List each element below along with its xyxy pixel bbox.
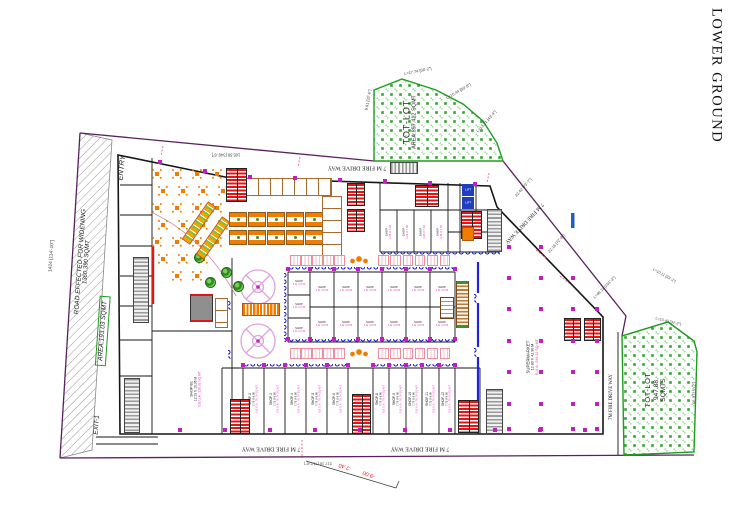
- column-marker: [448, 428, 451, 431]
- area-box-text: AREA:193.03 SQMT: [97, 301, 109, 361]
- courtyard-bench: [242, 303, 280, 316]
- shop-label: SHOP4.11 X 8.53: [293, 303, 305, 309]
- dining-table: [152, 237, 162, 247]
- stair-core: [347, 183, 365, 206]
- column-marker: [262, 363, 265, 366]
- booth-seating: [229, 212, 247, 227]
- dining-table: [198, 186, 208, 196]
- column-marker: [420, 363, 423, 366]
- column-marker: [308, 337, 311, 340]
- escalator: [133, 257, 149, 323]
- dining-table: [158, 220, 168, 230]
- column-marker: [325, 363, 328, 366]
- dining-table: [172, 203, 182, 213]
- column-marker: [223, 428, 226, 431]
- booth-seating: [229, 230, 247, 245]
- shop-label: SHOP4.11 X 8.53: [293, 280, 305, 286]
- shop-label: SHOP-57.75 X 9.90S.B.U.A : 76.74 SQ MT: [311, 380, 321, 419]
- planter: [403, 348, 414, 359]
- column-marker: [595, 307, 598, 310]
- column-marker: [371, 363, 374, 366]
- awning-scallop: [380, 252, 500, 257]
- stair-core: [584, 318, 601, 341]
- stall-counter: [215, 298, 228, 328]
- planter: [415, 348, 426, 359]
- column-marker: [507, 427, 510, 430]
- escalator: [456, 281, 469, 328]
- column-marker: [539, 245, 542, 248]
- kitchen-block: [190, 294, 213, 322]
- shop-label: SHOP4.26 X 7.92: [402, 218, 409, 246]
- column-marker: [332, 267, 335, 270]
- dining-table: [152, 203, 162, 213]
- column-marker: [539, 307, 542, 310]
- shop-label: SHOP4.26 X 7.92: [436, 218, 443, 246]
- shop-label: SHOP4.11 X 8.53: [412, 321, 424, 327]
- column-marker: [387, 363, 390, 366]
- awning-scallop: [373, 364, 455, 369]
- column-marker: [286, 267, 289, 270]
- column-marker: [268, 428, 271, 431]
- column-marker: [380, 337, 383, 340]
- column-marker: [571, 339, 574, 342]
- booth-seating: [305, 230, 323, 245]
- column-marker: [473, 182, 476, 185]
- booth-seating: [267, 230, 285, 245]
- shop-label: SHOP-87.75 X 9.90S.B.U.A : 76.74 SQ MT: [376, 380, 386, 419]
- supermarket-label: SUPERMARKET 12.80 X 42.90 M B.U.A : 549.…: [526, 339, 539, 375]
- shop-label: SHOP4.11 X 8.53: [364, 286, 376, 292]
- shop-label: SHOP4.11 X 8.53: [340, 321, 352, 327]
- dining-table: [158, 254, 168, 264]
- lift: LIFT: [462, 184, 474, 196]
- exit-label: EXIT-1: [93, 415, 102, 435]
- planter: [440, 348, 451, 359]
- column-marker: [539, 276, 542, 279]
- column-marker: [356, 267, 359, 270]
- entrance-steps: [390, 162, 418, 174]
- column-marker: [571, 427, 574, 430]
- dining-table: [158, 186, 168, 196]
- escalator: [486, 389, 503, 434]
- column-marker: [428, 337, 431, 340]
- column-marker: [571, 402, 574, 405]
- column-marker: [404, 337, 407, 340]
- shop-label: SHOP4.11 X 8.53: [293, 327, 305, 333]
- column-marker: [383, 179, 386, 182]
- column-marker: [158, 160, 161, 163]
- column-marker: [178, 428, 181, 431]
- dining-table: [152, 169, 162, 179]
- column-marker: [358, 428, 361, 431]
- column-marker: [283, 363, 286, 366]
- column-marker: [493, 428, 496, 431]
- column-marker: [507, 339, 510, 342]
- column-marker: [313, 428, 316, 431]
- column-marker: [595, 339, 598, 342]
- dining-table: [192, 169, 202, 179]
- service-box: [462, 227, 474, 241]
- floor-plan-sheet: LOWER GROUND ENTRY EXIT-1 ROAD EFFECTED …: [0, 0, 746, 522]
- column-marker: [241, 363, 244, 366]
- shop-label: SHOP4.26 X 7.92: [419, 218, 426, 246]
- column-marker: [507, 307, 510, 310]
- stair-core: [226, 168, 247, 202]
- booth-seating: [248, 230, 266, 245]
- planter: [290, 348, 301, 359]
- stall-counter: [246, 178, 332, 196]
- column-marker: [453, 337, 456, 340]
- dining-table: [172, 169, 182, 179]
- column-marker: [507, 245, 510, 248]
- column-marker: [539, 370, 542, 373]
- dim-top: 105.58 [346'-5"]: [212, 152, 241, 157]
- section-mark: [571, 213, 575, 228]
- dim-bottom: 217.16 [712'-6"]: [304, 461, 332, 466]
- tot-lot-top-area: [374, 79, 503, 161]
- planter: [312, 348, 323, 359]
- door-zigzag: [228, 349, 233, 359]
- column-marker: [583, 428, 586, 431]
- planter-ornament: [349, 347, 369, 360]
- dining-table: [172, 271, 182, 281]
- hall-label: SHOP-B1 12.19 X 10.36 M S.B.U.A : 126.33…: [190, 371, 202, 407]
- column-marker: [437, 363, 440, 366]
- shop-label: SHOP4.26 X 7.92: [385, 218, 392, 246]
- hall-area: S.B.U.A : 126.33 SQ MT: [198, 371, 202, 407]
- column-marker: [404, 363, 407, 366]
- booth-seating: [286, 212, 304, 227]
- planter: [334, 255, 345, 266]
- column-marker: [595, 402, 598, 405]
- shop-label: SHOP-127.75 X 9.90S.B.U.A : 76.74 SQ MT: [442, 380, 452, 419]
- stair-core: [347, 209, 365, 232]
- shop-label: SHOP-37.75 X 9.90S.B.U.A : 76.74 SQ MT: [269, 380, 279, 419]
- sheet-title: LOWER GROUND: [708, 8, 725, 143]
- shop-label: SHOP4.11 X 8.53: [436, 286, 448, 292]
- column-marker: [308, 267, 311, 270]
- store-box: [440, 297, 454, 319]
- tree: [233, 281, 244, 292]
- booth-seating: [286, 230, 304, 245]
- column-marker: [571, 370, 574, 373]
- fire-drive-way-right: 7M FIRE DRIVE WAY: [609, 374, 615, 420]
- lift: LIFT: [462, 197, 474, 209]
- tot-lot-top-label: TOT-LOT AREA:897.412 SQMT: [402, 95, 419, 149]
- column-marker: [286, 337, 289, 340]
- stall-counter: [322, 196, 342, 256]
- stair-core: [230, 399, 250, 434]
- shop-label: SHOP-117.75 X 9.90S.B.U.A : 76.74 SQ MT: [425, 380, 435, 419]
- awning-scallop: [243, 364, 348, 369]
- fire-drive-way-top: 7 M FIRE DRIVE WAY: [328, 164, 387, 171]
- stair-core: [415, 185, 439, 207]
- column-marker: [571, 307, 574, 310]
- stair-core: [564, 318, 581, 341]
- planter: [323, 255, 334, 266]
- column-marker: [428, 181, 431, 184]
- planter-ornament: [349, 254, 369, 267]
- shop-label: SHOP4.11 X 8.53: [436, 321, 448, 327]
- shop-label: SHOP4.11 X 8.53: [316, 321, 328, 327]
- column-marker: [539, 339, 542, 342]
- shop-label: SHOP4.11 X 8.53: [412, 286, 424, 292]
- column-marker: [346, 363, 349, 366]
- tot-lot-top-name: TOT-LOT: [402, 95, 412, 149]
- planter: [334, 348, 345, 359]
- stair-core: [458, 400, 479, 433]
- column-marker: [571, 276, 574, 279]
- planter: [301, 348, 312, 359]
- tot-lot-top-area: AREA:897.412 SQMT: [412, 95, 418, 149]
- column-marker: [507, 370, 510, 373]
- shop-label: SHOP4.11 X 8.53: [340, 286, 352, 292]
- shop-label: SHOP4.11 X 8.53: [316, 286, 328, 292]
- booth-seating: [267, 212, 285, 227]
- dining-table: [178, 254, 188, 264]
- column-marker: [595, 427, 598, 430]
- planter: [312, 255, 323, 266]
- booth-seating: [248, 212, 266, 227]
- dining-table: [192, 271, 202, 281]
- booth-seating: [305, 212, 323, 227]
- column-marker: [203, 169, 206, 172]
- shop-label: SHOP-97.75 X 9.90S.B.U.A : 76.74 SQ MT: [392, 380, 402, 419]
- planter: [323, 348, 334, 359]
- fire-drive-way-bottom-right: 7 M FIRE DRIVE WAY: [391, 445, 450, 452]
- plan-linework: [0, 0, 746, 522]
- dim-right-lower: 46.3 [15'-2"]: [693, 382, 698, 404]
- planter: [378, 348, 389, 359]
- shop-label: SHOP-27.75 X 9.90S.B.U.A : 76.74 SQ MT: [248, 380, 258, 419]
- planter: [301, 255, 312, 266]
- door-zigzag: [228, 300, 233, 310]
- column-marker: [404, 267, 407, 270]
- column-marker: [453, 363, 456, 366]
- column-marker: [380, 267, 383, 270]
- tot-lot-bottom-unit: SQMTS: [660, 372, 667, 407]
- shop-label: SHOP4.11 X 8.53: [388, 321, 400, 327]
- column-marker: [539, 402, 542, 405]
- column-marker: [453, 267, 456, 270]
- tot-lot-bottom-label: TOT-LOT 947.88 SQMTS: [644, 372, 668, 407]
- tot-lot-bottom-name: TOT-LOT: [644, 372, 653, 407]
- door-zigzag: [474, 347, 479, 357]
- shop-label: SHOP4.11 X 8.53: [388, 286, 400, 292]
- dining-table: [178, 186, 188, 196]
- column-marker: [428, 267, 431, 270]
- column-marker: [248, 175, 251, 178]
- tot-lot-bottom-area: 947.88: [653, 372, 660, 407]
- shop-label: SHOP4.11 X 8.53: [364, 321, 376, 327]
- awning-scallop: [284, 272, 289, 342]
- shop-label: SHOP-67.75 X 9.90S.B.U.A : 76.74 SQ MT: [332, 380, 342, 419]
- column-marker: [595, 370, 598, 373]
- column-marker: [507, 402, 510, 405]
- column-marker: [338, 178, 341, 181]
- fire-drive-way-bottom-left: 7 M FIRE DRIVE WAY: [242, 445, 301, 452]
- planter: [390, 348, 401, 359]
- column-marker: [539, 427, 542, 430]
- dining-table: [212, 169, 222, 179]
- column-marker: [293, 176, 296, 179]
- column-marker: [507, 276, 510, 279]
- door-zigzag: [474, 293, 479, 303]
- escalator: [487, 209, 502, 252]
- planter: [427, 348, 438, 359]
- shop-label: SHOP-107.75 X 9.90S.B.U.A : 76.74 SQ MT: [409, 380, 419, 419]
- tree: [221, 267, 232, 278]
- column-marker: [356, 337, 359, 340]
- tree: [205, 277, 216, 288]
- planter: [290, 255, 301, 266]
- column-marker: [332, 337, 335, 340]
- column-marker: [403, 428, 406, 431]
- dining-table: [178, 220, 188, 230]
- escalator: [124, 378, 140, 433]
- column-marker: [304, 363, 307, 366]
- shop-label: SHOP-47.75 X 9.90S.B.U.A : 76.74 SQ MT: [290, 380, 300, 419]
